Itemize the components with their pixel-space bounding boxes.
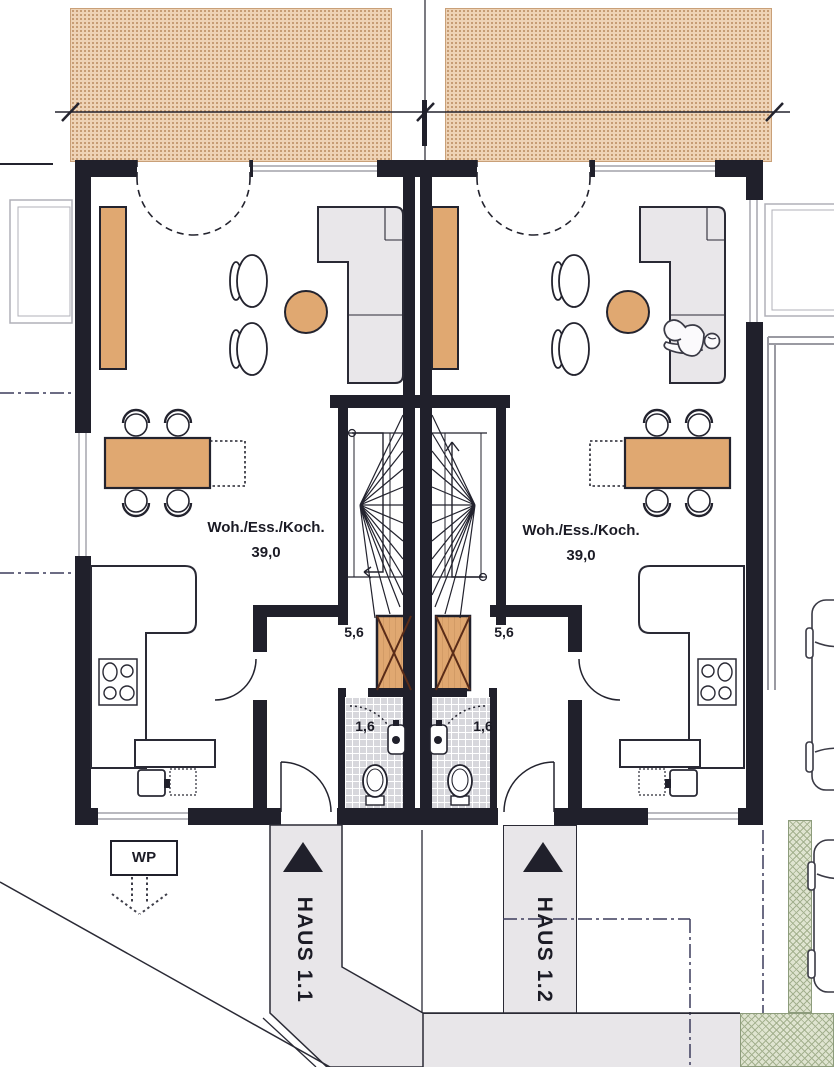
interior-door-arcs xyxy=(215,659,620,812)
kitchen-right xyxy=(620,566,744,796)
kitchen-left xyxy=(91,566,215,796)
window-well xyxy=(765,204,834,316)
room-area-living-right: 39,0 xyxy=(531,548,631,565)
room-label-living-left: Woh./Ess./Koch. xyxy=(166,520,366,537)
sideboard-right xyxy=(432,207,458,369)
coffee-table-right xyxy=(607,291,649,333)
neighbor-structure xyxy=(10,200,72,323)
furniture-left xyxy=(100,207,403,516)
room-area-wc-left: 1,6 xyxy=(345,719,385,734)
room-area-living-left: 39,0 xyxy=(216,545,316,562)
dimension-line xyxy=(0,0,790,164)
staircase-left xyxy=(348,415,403,618)
armchairs-left xyxy=(230,255,267,375)
car-icon xyxy=(806,600,834,790)
shaft-cross-left xyxy=(377,616,411,690)
room-label-living-right: Woh./Ess./Koch. xyxy=(481,523,681,540)
furniture-right xyxy=(432,207,730,516)
sofa-left xyxy=(318,207,403,383)
floor-plan: WP xyxy=(0,0,834,1067)
house-label-haus-1-1: HAUS 1.1 xyxy=(290,880,316,1020)
room-area-wc-right: 1,6 xyxy=(463,719,503,734)
armchairs-right xyxy=(552,255,589,375)
house-label-haus-1-2: HAUS 1.2 xyxy=(530,880,556,1020)
room-area-hall-right: 5,6 xyxy=(484,625,524,640)
car-icon xyxy=(808,840,834,992)
room-area-hall-left: 5,6 xyxy=(334,625,374,640)
dining-set-right xyxy=(590,410,730,516)
sofa-right xyxy=(640,207,725,383)
boundary-dashdot xyxy=(0,393,72,573)
entrance-arrow-haus-1-2 xyxy=(523,842,563,872)
plan-linework xyxy=(0,0,834,1067)
sideboard-left xyxy=(100,207,126,369)
wp-arrow-icon xyxy=(112,877,167,914)
dining-set-left xyxy=(105,410,245,516)
staircase-right xyxy=(432,415,487,618)
coffee-table-left xyxy=(285,291,327,333)
shaft-cross-right xyxy=(436,616,470,690)
